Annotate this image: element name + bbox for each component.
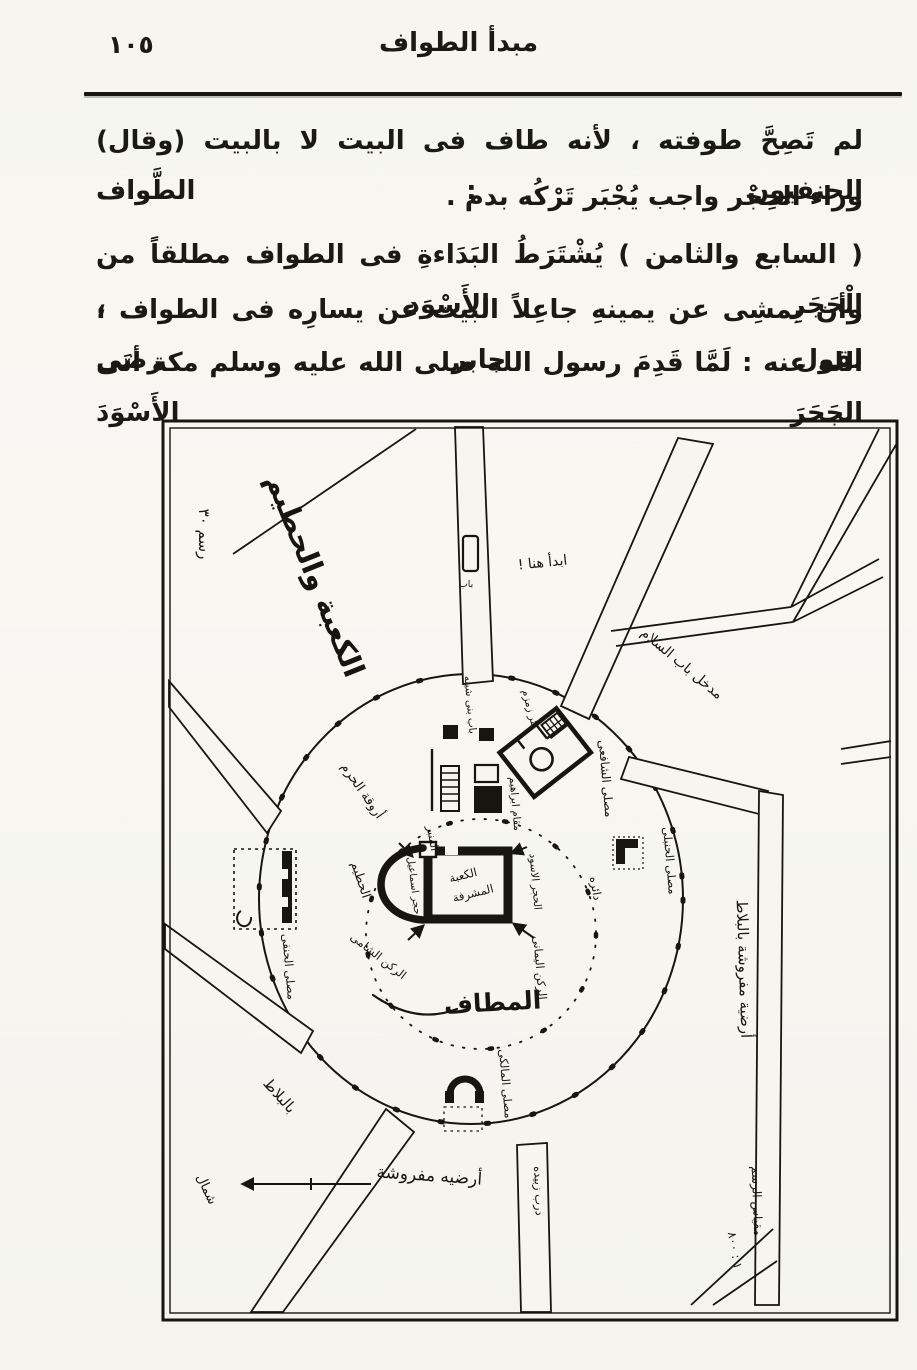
north-label: شمال	[193, 1172, 220, 1207]
paved-tiles-label: بالبلاط	[259, 1075, 300, 1117]
scanned-book-page: { "page": { "page_number": "١٠٥", "heade…	[0, 0, 917, 1370]
musalla-maliki-label: مصلى المالكى	[496, 1048, 516, 1118]
maqam-ibrahim-block	[474, 786, 502, 813]
maqam-ibrahim-outline	[475, 765, 498, 782]
map-title-label: الكعبة والحطيم	[259, 469, 372, 682]
kaaba-door-gap	[445, 843, 458, 855]
bab-bani-shayba-pillar-left	[443, 725, 458, 739]
kaaba-structure	[428, 851, 508, 919]
street-bottomleft-diagonal	[251, 1109, 414, 1312]
musalla-hanafi-label: مصلى الحنفى	[279, 933, 299, 1000]
scale-value-label: ١ : ٨٠٠	[725, 1231, 745, 1270]
gate-label: باب	[459, 579, 473, 590]
street-right-connector	[621, 757, 768, 815]
hatim-label: الحطيم	[347, 859, 374, 900]
kaaba-map-figure: رسم ٣٠ الكعبة والحطيم ابدأ هنا ! مدخل با…	[161, 419, 899, 1322]
street-upperleft-diagonal	[169, 681, 281, 833]
rukn-shami-arrow	[408, 926, 423, 940]
paved-bottom-label: أرضيه مفروشة	[376, 1160, 483, 1189]
daira-label: دائره	[586, 875, 605, 901]
block-line-right-short	[841, 741, 891, 764]
kaaba-map-svg: رسم ٣٠ الكعبة والحطيم ابدأ هنا ! مدخل با…	[161, 419, 899, 1322]
figure-number-label: رسم ٣٠	[195, 509, 213, 560]
bab-bani-shayba-label: باب بنى شيبه	[461, 675, 478, 734]
paragraph1-line2: وراء الحِجْر واجب يُجْبَر تَرْكُه بدم .	[96, 172, 863, 222]
paved-right-label: أرضية مفروشة بالبلاط	[733, 899, 757, 1038]
musalla-hanafi-structure	[234, 849, 296, 929]
gate-structure	[463, 536, 478, 571]
musalla-shafii-label: مصلى الشافعى	[596, 739, 617, 817]
musalla-hanbali-label: مصلى الحنبلى	[660, 826, 680, 895]
header-rule	[84, 92, 902, 96]
black-stone-label: الحجر الاسود	[527, 853, 544, 910]
black-stone-arrow	[512, 847, 527, 853]
block-line-topleft	[233, 429, 416, 554]
minbar-structure	[432, 749, 459, 811]
mataf-label: المطاف	[443, 985, 542, 1019]
musalla-hanbali-structure	[613, 837, 643, 869]
bab-bani-shayba-pillar-right	[479, 728, 494, 741]
rukn-shami-label: الركن الشامى	[347, 930, 409, 983]
arcade-label: أروقة الحرم	[337, 759, 388, 822]
page-title: مبدأ الطواف	[0, 28, 917, 58]
hijr-ismail-label: حجر اسماعيل	[404, 856, 422, 915]
scale-label: مقياس الرسم	[748, 1166, 765, 1236]
street-name-label: درب زبيده	[530, 1166, 547, 1216]
zamzam-label: بئر زمزم	[519, 688, 540, 728]
start-note-label: ابدأ هنا !	[517, 550, 568, 573]
